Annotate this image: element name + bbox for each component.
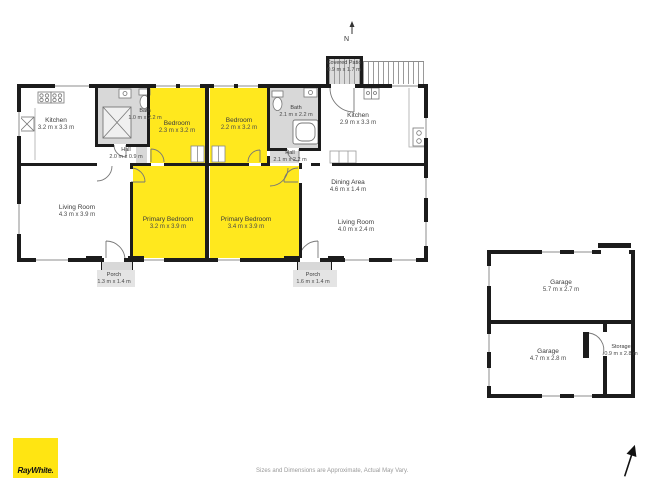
raywhite-logo-text: RayWhite. bbox=[18, 466, 54, 478]
room-label-covered-patio: Covered Patio 0.9 m x 1.7 m bbox=[327, 60, 362, 73]
room-label-hall-left: Hall 2.0 m x 0.9 m bbox=[109, 147, 142, 160]
room-label-primary-right: Primary Bedroom 3.4 m x 3.9 m bbox=[221, 216, 272, 231]
room-label-bath-left: Bath 1.0 m x 2.2 m bbox=[128, 108, 161, 121]
room-label-primary-left: Primary Bedroom 3.2 m x 3.9 m bbox=[143, 216, 194, 231]
raywhite-logo: RayWhite. bbox=[13, 438, 58, 478]
disclaimer-text: Sizes and Dimensions are Approximate, Ac… bbox=[256, 468, 408, 474]
room-label-bath-right: Bath 2.1 m x 2.2 m bbox=[279, 105, 312, 118]
room-label-porch-right: Porch 1.6 m x 1.4 m bbox=[296, 272, 329, 285]
north-arrow-small-icon bbox=[350, 21, 355, 34]
room-label-garage-2: Garage 4.7 m x 2.8 m bbox=[530, 348, 566, 363]
floorplan-canvas: Kitchen 3.2 m x 3.3 m Bath 1.0 m x 2.2 m… bbox=[0, 0, 658, 493]
north-arrow-icon bbox=[620, 443, 640, 478]
room-label-living-left: Living Room 4.3 m x 3.9 m bbox=[59, 204, 95, 219]
compass-north-label: N bbox=[344, 36, 349, 43]
room-label-kitchen-right: Kitchen 2.9 m x 3.3 m bbox=[340, 112, 376, 127]
room-label-dining: Dining Area 4.6 m x 1.4 m bbox=[330, 179, 366, 194]
room-label-garage-1: Garage 5.7 m x 2.7 m bbox=[543, 279, 579, 294]
room-label-porch-left: Porch 1.3 m x 1.4 m bbox=[97, 272, 130, 285]
room-label-living-right: Living Room 4.0 m x 2.4 m bbox=[338, 219, 374, 234]
room-label-storage: Storage 0.9 m x 2.8 m bbox=[604, 344, 638, 357]
room-label-bedroom-left: Bedroom 2.3 m x 3.2 m bbox=[159, 120, 195, 135]
compass-overlay bbox=[0, 0, 658, 493]
room-label-hall-right: Hall 2.1 m x 2.2 m bbox=[273, 150, 306, 163]
room-label-bedroom-right: Bedroom 2.2 m x 3.2 m bbox=[221, 117, 257, 132]
room-label-kitchen-left: Kitchen 3.2 m x 3.3 m bbox=[38, 117, 74, 132]
